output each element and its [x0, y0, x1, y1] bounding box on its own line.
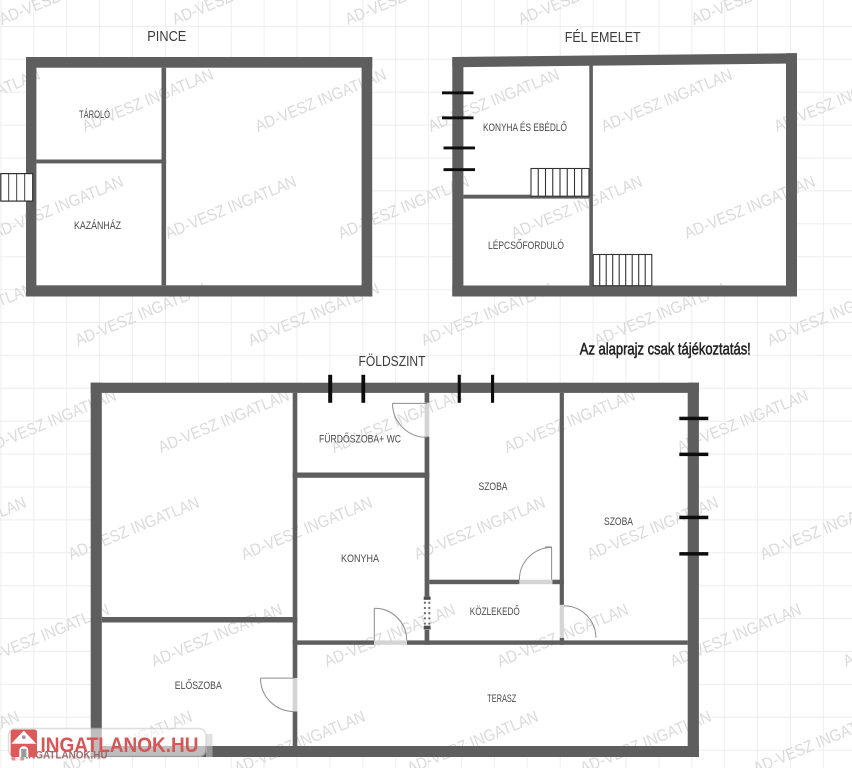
- svg-text:KÖZLEKEDŐ: KÖZLEKEDŐ: [470, 604, 520, 618]
- svg-text:AD-VESZ INGATLAN: AD-VESZ INGATLAN: [841, 601, 852, 671]
- svg-text:LÉPCSŐFORDULÓ: LÉPCSŐFORDULÓ: [488, 238, 564, 252]
- svg-text:TÁROLÓ: TÁROLÓ: [79, 108, 110, 121]
- svg-text:AD-VESZ INGATLAN: AD-VESZ INGATLAN: [689, 0, 825, 29]
- svg-text:AD-VESZ INGATLAN: AD-VESZ INGATLAN: [751, 708, 852, 768]
- svg-text:FÖLDSZINT: FÖLDSZINT: [359, 352, 426, 370]
- svg-text:SZOBA: SZOBA: [479, 481, 509, 493]
- svg-text:Az alaprajz csak tájékoztatás!: Az alaprajz csak tájékoztatás!: [580, 340, 751, 359]
- svg-text:AD-VESZ INGATLAN: AD-VESZ INGATLAN: [516, 0, 652, 29]
- svg-text:FÉL EMELET: FÉL EMELET: [565, 29, 641, 46]
- svg-text:KAZÁNHÁZ: KAZÁNHÁZ: [74, 219, 121, 232]
- svg-text:FÜRDŐSZOBA+ WC: FÜRDŐSZOBA+ WC: [319, 432, 401, 446]
- svg-text:ELŐSZOBA: ELŐSZOBA: [175, 678, 223, 692]
- svg-text:KONYHA ÉS EBÉDLŐ: KONYHA ÉS EBÉDLŐ: [483, 120, 567, 134]
- svg-text:PINCE: PINCE: [147, 29, 186, 45]
- svg-text:SZOBA: SZOBA: [604, 516, 634, 528]
- svg-text:KONYHA: KONYHA: [341, 553, 380, 565]
- svg-text:AD-VESZ INGATLAN: AD-VESZ INGATLAN: [848, 387, 852, 457]
- svg-text:AD-VESZ INGATLAN: AD-VESZ INGATLAN: [170, 0, 306, 29]
- svg-text:INGATLANOK.HU: INGATLANOK.HU: [41, 733, 199, 757]
- svg-text:TERASZ: TERASZ: [487, 693, 516, 705]
